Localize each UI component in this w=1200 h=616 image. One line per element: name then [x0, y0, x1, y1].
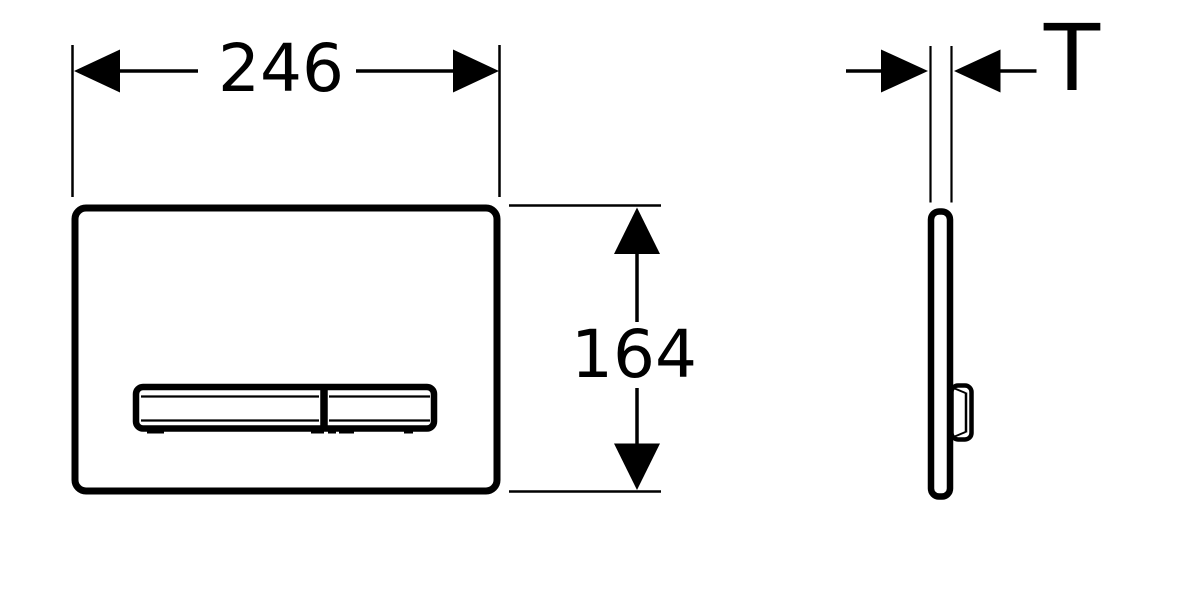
- width-dimension-label: 246: [218, 30, 344, 107]
- height-dimension-label: 164: [571, 316, 697, 393]
- side-view: T: [846, 5, 1101, 497]
- flush-buttons: [136, 385, 434, 434]
- height-arrowhead-top: [614, 208, 660, 255]
- height-dimension: 164: [509, 206, 697, 492]
- button-base-mark: [404, 431, 413, 434]
- front-view: 246 164: [73, 30, 697, 492]
- thickness-arrowhead-left: [881, 50, 928, 93]
- width-dimension: 246: [73, 30, 500, 197]
- button-side-outline: [952, 386, 972, 440]
- thickness-dimension-label: T: [1043, 5, 1101, 112]
- flush-button-side: [952, 386, 972, 440]
- width-arrowhead-left: [74, 50, 120, 93]
- width-arrowhead-right: [453, 50, 499, 93]
- button-base-mark: [328, 431, 336, 434]
- button-base-mark: [147, 431, 164, 434]
- flush-plate-front: [75, 208, 497, 491]
- thickness-dimension: T: [846, 5, 1101, 203]
- technical-drawing-canvas: 246 164: [0, 0, 1200, 616]
- thickness-arrowhead-right: [954, 50, 1001, 93]
- technical-drawing: 246 164: [0, 0, 1200, 616]
- flush-buttons-outline: [136, 387, 434, 429]
- button-base-mark: [339, 431, 354, 434]
- button-base-mark: [311, 431, 324, 434]
- flush-plate-side: [931, 212, 950, 497]
- height-arrowhead-bottom: [614, 444, 660, 491]
